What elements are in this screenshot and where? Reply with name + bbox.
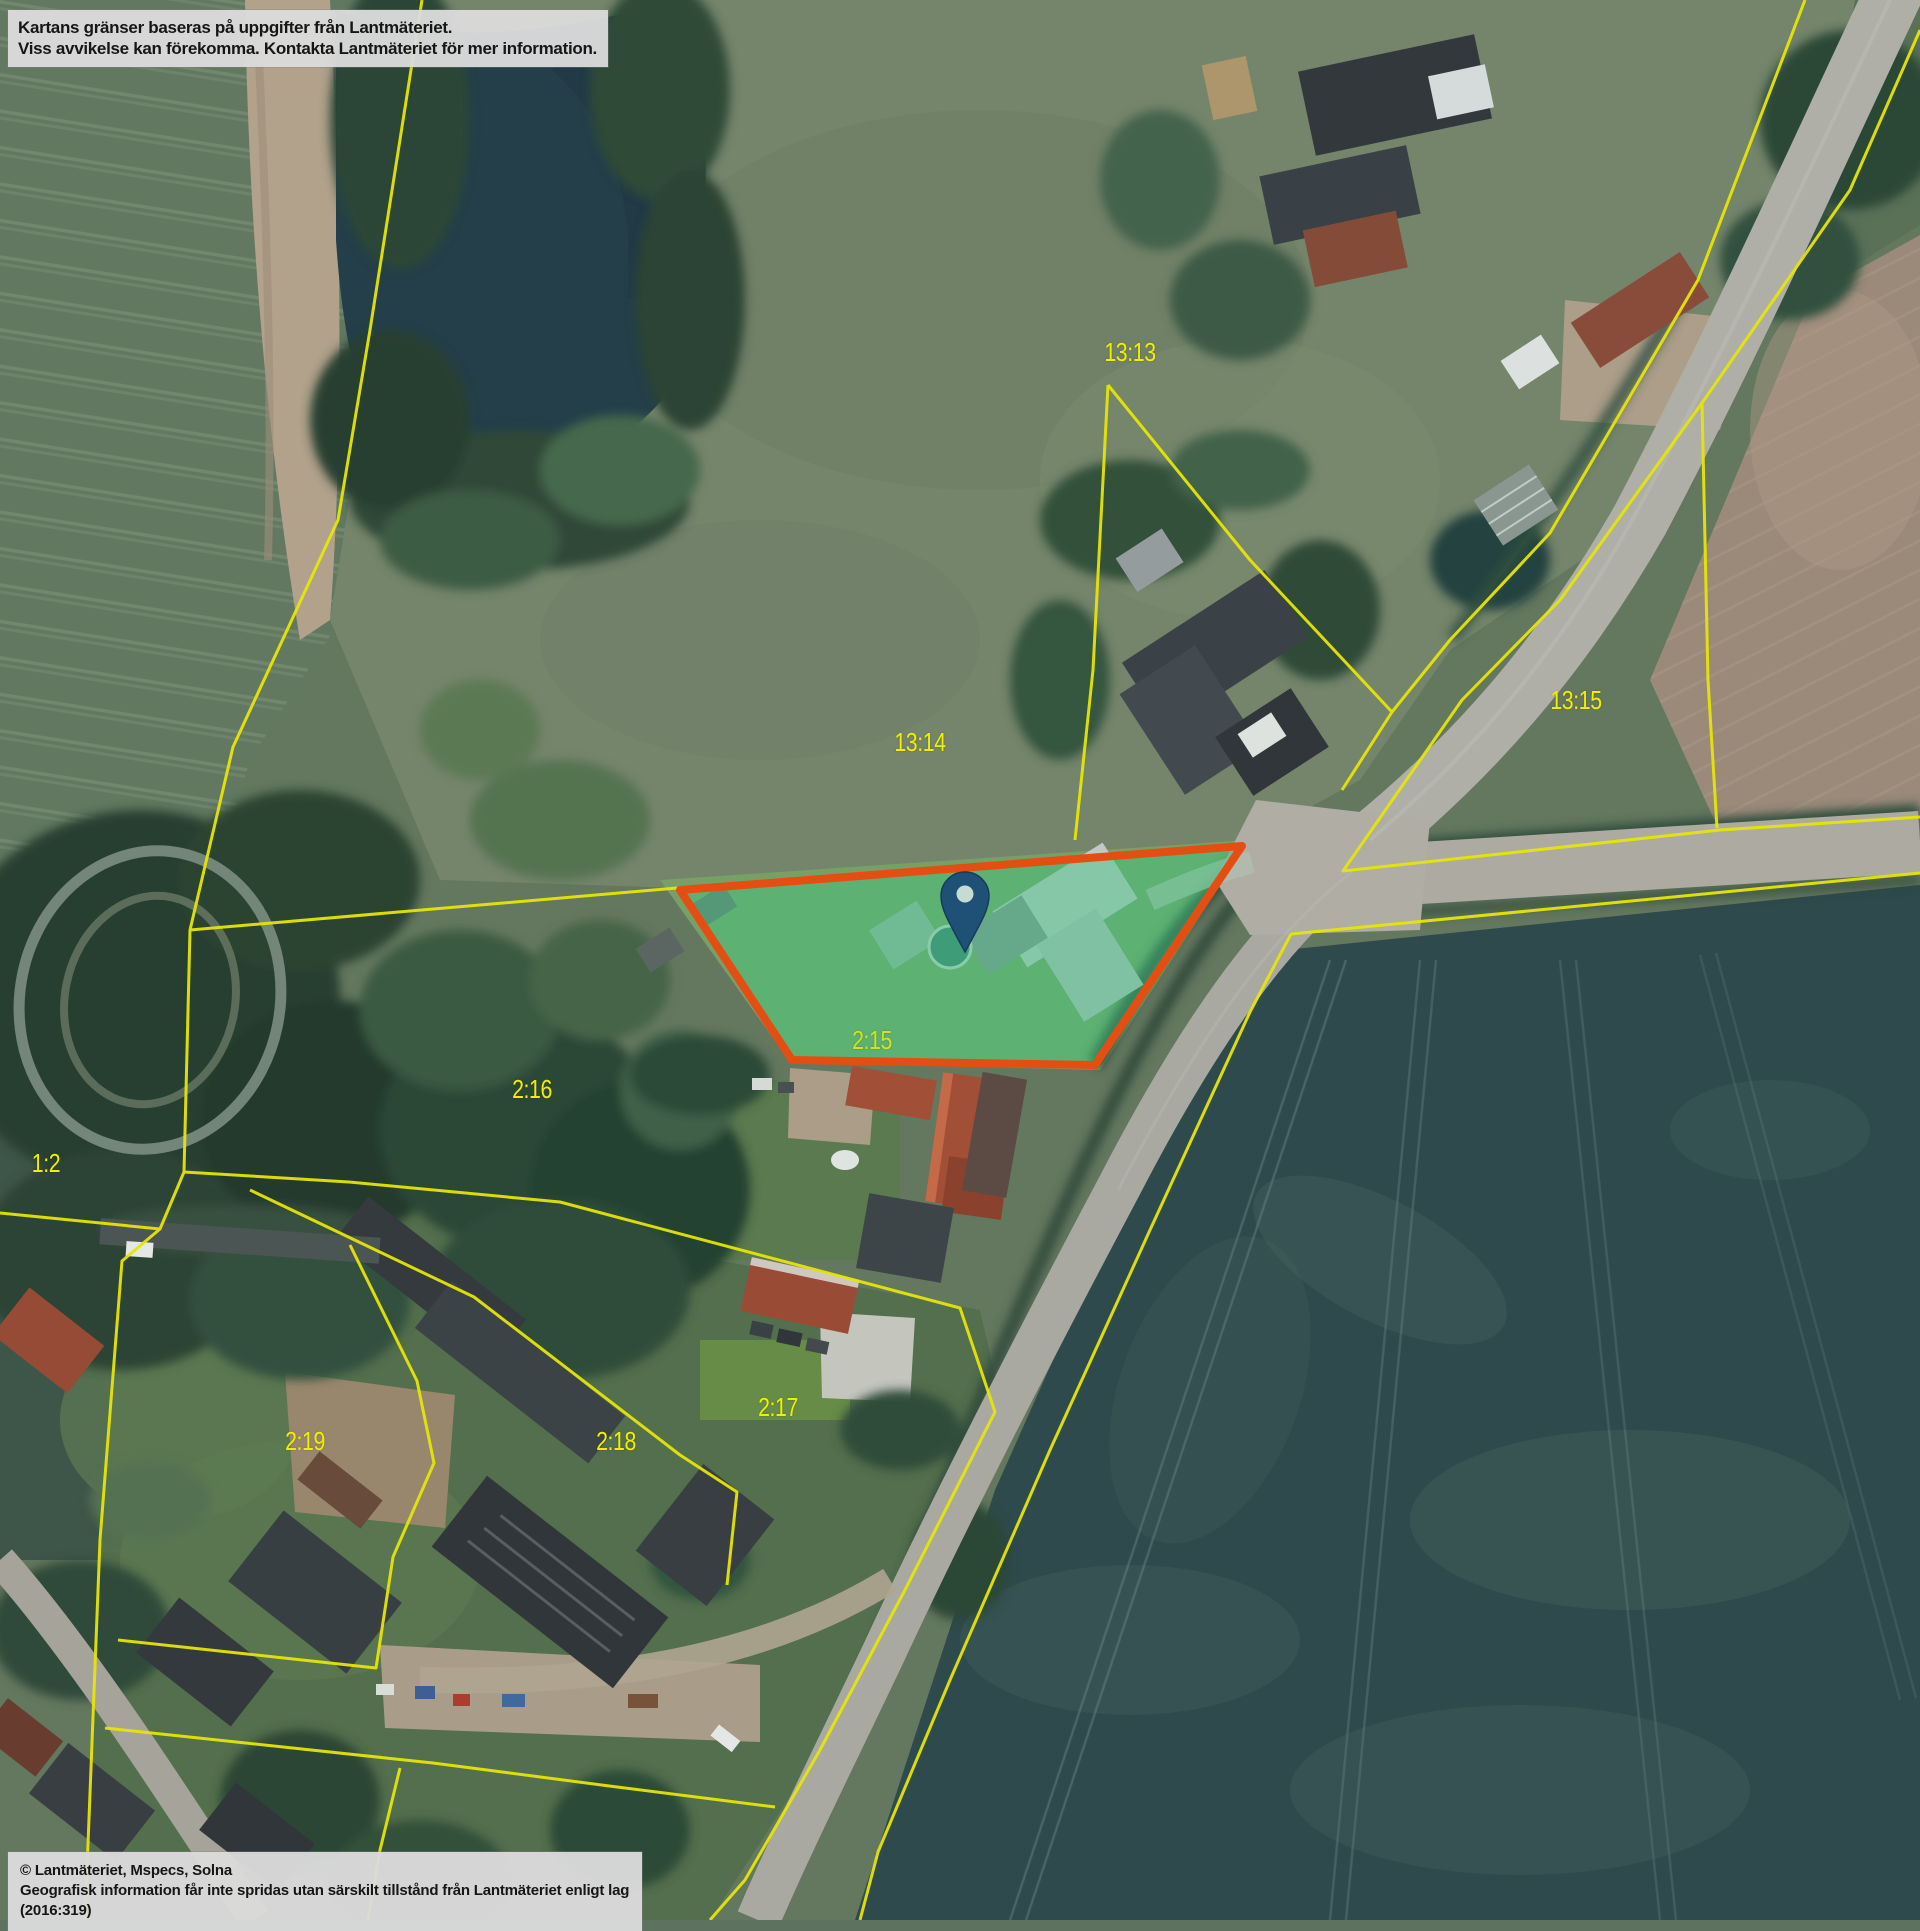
photo-tint: [0, 0, 1920, 1920]
attribution-line-2: Geografisk information får inte spridas …: [20, 1881, 630, 1921]
disclaimer-line-1: Kartans gränser baseras på uppgifter frå…: [18, 17, 597, 38]
map-attribution: © Lantmäteriet, Mspecs, Solna Geografisk…: [8, 1852, 642, 1931]
aerial-map-canvas[interactable]: [0, 0, 1920, 1920]
disclaimer-line-2: Viss avvikelse kan förekomma. Kontakta L…: [18, 38, 597, 59]
map-viewport[interactable]: 13:13 13:14 13:15 2:15 2:16 1:2 2:19 2:1…: [0, 0, 1920, 1920]
attribution-line-1: © Lantmäteriet, Mspecs, Solna: [20, 1861, 630, 1881]
map-disclaimer: Kartans gränser baseras på uppgifter frå…: [8, 10, 608, 67]
